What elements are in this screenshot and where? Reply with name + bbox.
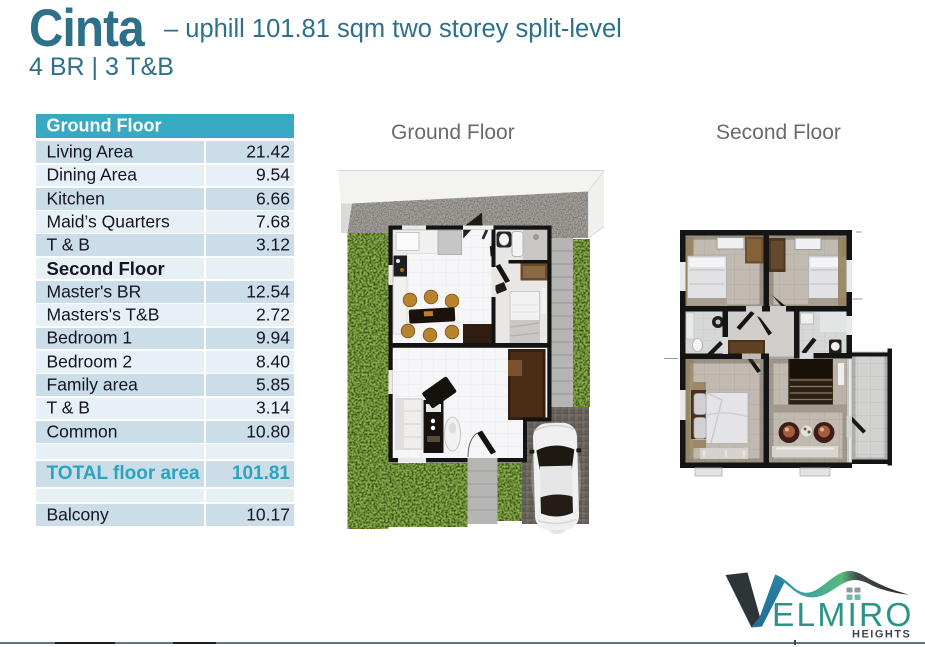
svg-text:HEIGHTS: HEIGHTS xyxy=(852,629,911,641)
